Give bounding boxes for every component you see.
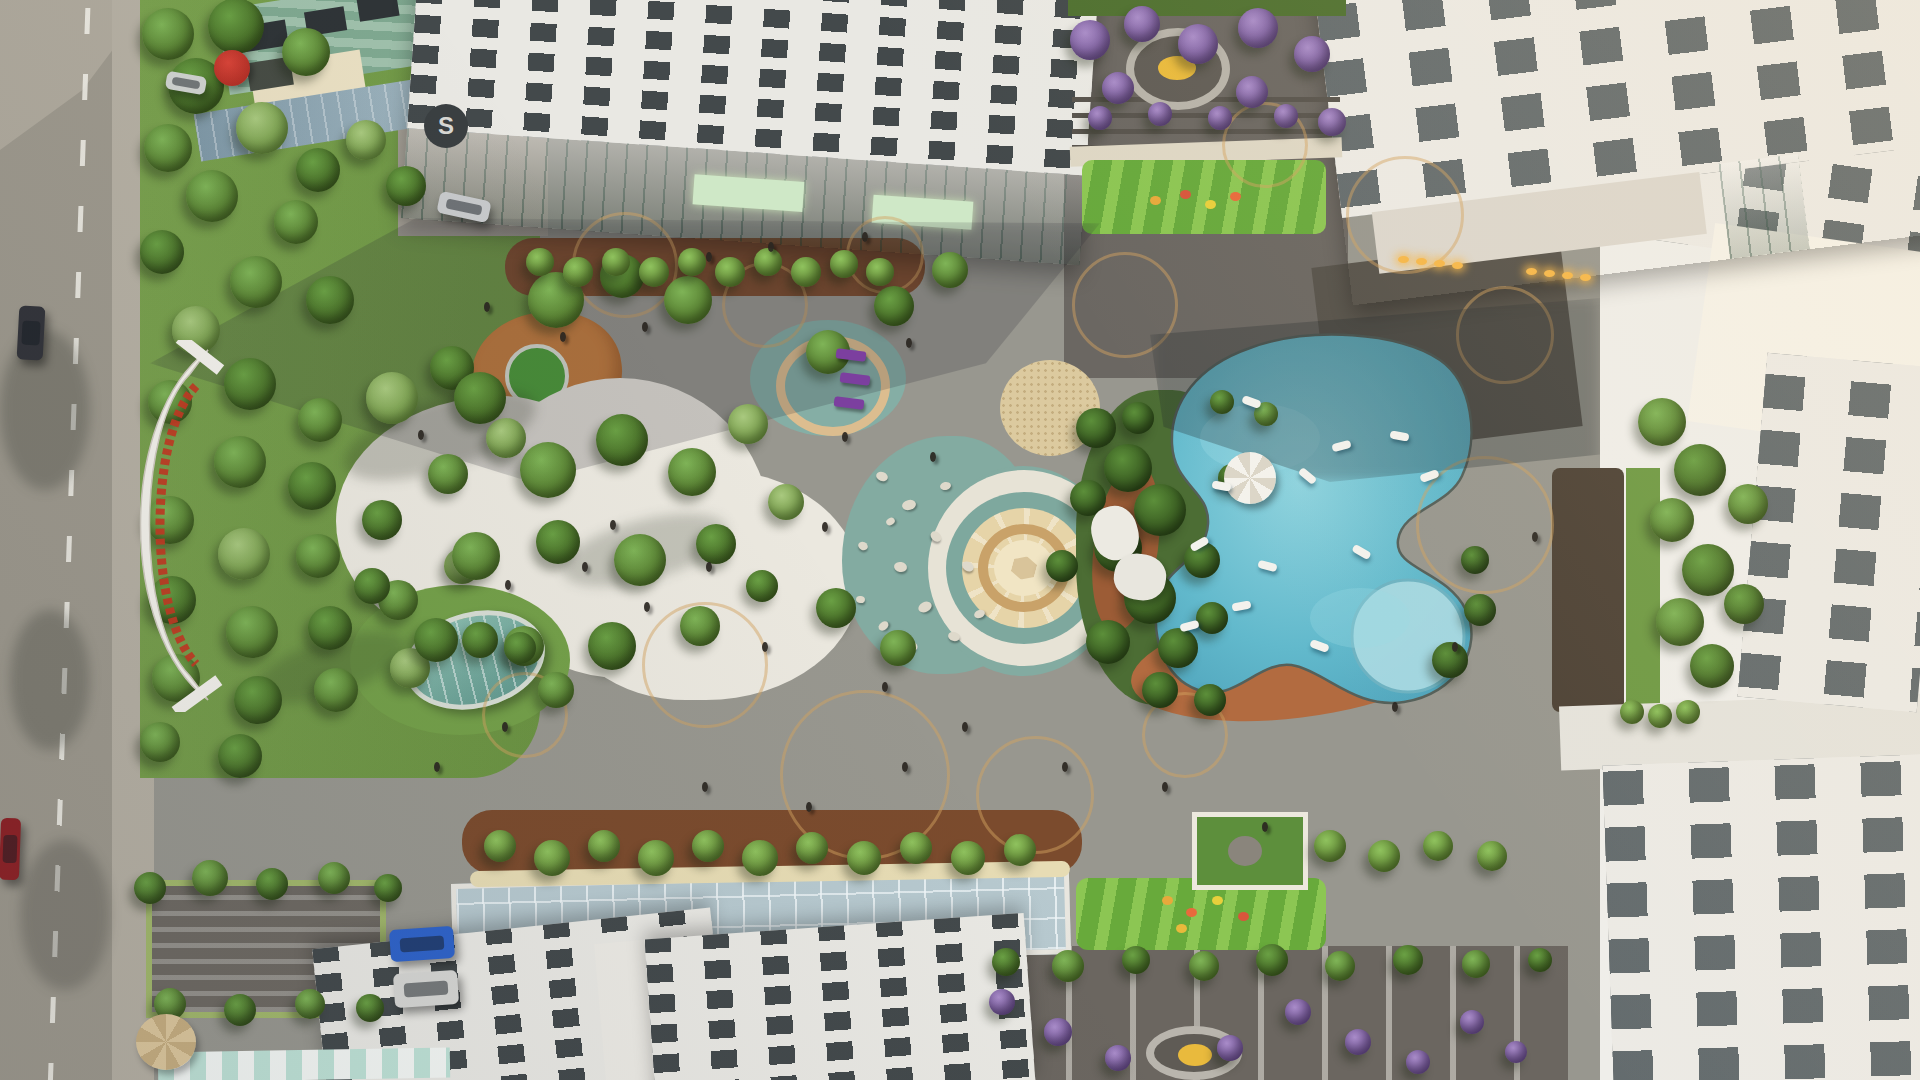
tree bbox=[1088, 106, 1112, 130]
tree bbox=[989, 989, 1015, 1015]
red-cafe-umbrella bbox=[214, 50, 250, 86]
tree bbox=[298, 398, 342, 442]
tree bbox=[1423, 831, 1453, 861]
pond-pebble bbox=[857, 540, 869, 551]
flower-dot bbox=[1176, 924, 1187, 933]
tower-bottom-right bbox=[1602, 755, 1920, 1080]
person bbox=[768, 242, 774, 252]
person bbox=[1162, 782, 1168, 792]
tree bbox=[639, 257, 669, 287]
entrance-downlight bbox=[1562, 272, 1573, 279]
tree bbox=[1046, 550, 1078, 582]
tree bbox=[715, 257, 745, 287]
car-windshield bbox=[403, 980, 449, 998]
tree bbox=[1505, 1041, 1527, 1063]
tree bbox=[847, 841, 881, 875]
right-glass-band bbox=[1737, 353, 1920, 712]
purple-lounger bbox=[840, 372, 871, 386]
tree bbox=[1345, 1029, 1371, 1055]
pond-pebble bbox=[917, 600, 934, 615]
tree bbox=[1142, 672, 1178, 708]
tree bbox=[1122, 946, 1150, 974]
tree bbox=[1460, 1010, 1484, 1034]
flower-dot bbox=[1230, 192, 1241, 201]
tree bbox=[1368, 840, 1400, 872]
tree bbox=[680, 606, 720, 646]
flower-dot bbox=[1212, 896, 1223, 905]
person bbox=[906, 338, 912, 348]
tree bbox=[1208, 106, 1232, 130]
planter-sculpture bbox=[1228, 836, 1262, 866]
entrance-downlight bbox=[1452, 262, 1463, 269]
person bbox=[842, 432, 848, 442]
flower-dot bbox=[1205, 200, 1216, 209]
tree bbox=[374, 874, 402, 902]
tree bbox=[1256, 944, 1288, 976]
person bbox=[610, 520, 616, 530]
entrance-canopy bbox=[78, 340, 238, 712]
person bbox=[484, 302, 490, 312]
tree bbox=[1676, 700, 1700, 724]
tree bbox=[526, 248, 554, 276]
tree bbox=[538, 672, 574, 708]
yellow-flower-bed bbox=[1178, 1044, 1212, 1066]
paving-circle-ring bbox=[1456, 286, 1554, 384]
tree bbox=[728, 404, 768, 444]
tree bbox=[678, 248, 706, 276]
person bbox=[1392, 702, 1398, 712]
canopy-end-wall bbox=[172, 675, 223, 712]
pond-pebble bbox=[855, 595, 865, 603]
pond-pebble bbox=[973, 608, 986, 619]
tree bbox=[1236, 76, 1268, 108]
tree bbox=[282, 28, 330, 76]
tree bbox=[1285, 999, 1311, 1025]
tree bbox=[1148, 102, 1172, 126]
dark-water-feature bbox=[1552, 468, 1624, 712]
tree bbox=[1004, 834, 1036, 866]
tree bbox=[1393, 945, 1423, 975]
car-windshield bbox=[399, 935, 445, 952]
tree bbox=[1682, 544, 1734, 596]
person bbox=[706, 252, 712, 262]
tree bbox=[1217, 1035, 1243, 1061]
tree bbox=[386, 166, 426, 206]
tree bbox=[588, 622, 636, 670]
tree bbox=[1104, 444, 1152, 492]
tree bbox=[874, 286, 914, 326]
tree bbox=[486, 418, 526, 458]
person bbox=[582, 562, 588, 572]
entrance-downlight bbox=[1526, 268, 1537, 275]
entrance-sign-lettering bbox=[160, 386, 196, 664]
tree bbox=[1274, 104, 1298, 128]
canopy-roof bbox=[141, 350, 209, 700]
tree bbox=[768, 484, 804, 520]
tree bbox=[816, 588, 856, 628]
pond-pebble bbox=[885, 516, 896, 527]
tree bbox=[900, 832, 932, 864]
entrance-downlight bbox=[1416, 258, 1427, 265]
tree bbox=[1189, 951, 1219, 981]
s-logo-mark: S bbox=[424, 104, 468, 148]
car-windshield bbox=[3, 835, 18, 863]
tower-bottom-center bbox=[645, 913, 1036, 1080]
tree bbox=[1477, 841, 1507, 871]
tree bbox=[1044, 1018, 1072, 1046]
tree bbox=[186, 170, 238, 222]
tree bbox=[308, 606, 352, 650]
car-white-parked bbox=[393, 970, 459, 1008]
terrace-hedge-edge bbox=[1068, 0, 1346, 16]
tree bbox=[951, 841, 985, 875]
tree bbox=[880, 630, 916, 666]
tree bbox=[1076, 408, 1116, 448]
person bbox=[706, 562, 712, 572]
tree bbox=[296, 148, 340, 192]
tree bbox=[142, 8, 194, 60]
tree bbox=[1528, 948, 1552, 972]
tree bbox=[356, 994, 384, 1022]
person bbox=[862, 232, 868, 242]
tree bbox=[791, 257, 821, 287]
tree bbox=[306, 276, 354, 324]
entrance-downlight bbox=[1434, 260, 1445, 267]
tree bbox=[1728, 484, 1768, 524]
tree bbox=[1102, 72, 1134, 104]
car-windshield bbox=[445, 198, 483, 215]
person bbox=[1452, 642, 1458, 652]
tree bbox=[1196, 602, 1228, 634]
tree bbox=[192, 860, 228, 896]
tree bbox=[256, 868, 288, 900]
person bbox=[502, 722, 508, 732]
tree bbox=[1461, 546, 1489, 574]
tree bbox=[274, 200, 318, 244]
pond-pebble bbox=[893, 561, 908, 573]
tree bbox=[668, 448, 716, 496]
tree bbox=[362, 500, 402, 540]
car-windshield bbox=[172, 77, 201, 90]
tree bbox=[1158, 628, 1198, 668]
entrance-downlight bbox=[1398, 256, 1409, 263]
tree bbox=[520, 442, 576, 498]
tree bbox=[614, 534, 666, 586]
car-blue-parked bbox=[389, 926, 455, 962]
tree bbox=[932, 252, 968, 288]
tree bbox=[208, 0, 264, 54]
tree bbox=[563, 257, 593, 287]
tree bbox=[295, 989, 325, 1019]
pond-pebble bbox=[901, 498, 917, 511]
tree bbox=[1432, 642, 1468, 678]
tree bbox=[288, 462, 336, 510]
tree bbox=[992, 948, 1020, 976]
tree bbox=[1210, 390, 1234, 414]
person bbox=[642, 322, 648, 332]
person bbox=[902, 762, 908, 772]
tree bbox=[1674, 444, 1726, 496]
tree bbox=[1325, 951, 1355, 981]
person bbox=[1262, 822, 1268, 832]
person bbox=[806, 802, 812, 812]
tree bbox=[1724, 584, 1764, 624]
tree bbox=[1134, 484, 1186, 536]
tree bbox=[1656, 598, 1704, 646]
flower-dot bbox=[1186, 908, 1197, 917]
car-windshield bbox=[21, 321, 40, 346]
aerial-render-scene: S bbox=[0, 0, 1920, 1080]
tree bbox=[1690, 644, 1734, 688]
pool-umbrella bbox=[1224, 452, 1276, 504]
entrance-downlight bbox=[1580, 274, 1591, 281]
tree bbox=[1238, 8, 1278, 48]
tree bbox=[742, 840, 778, 876]
entrance-downlight bbox=[1544, 270, 1555, 277]
tree bbox=[236, 102, 288, 154]
lit-lobby-window bbox=[693, 174, 805, 212]
person bbox=[1532, 532, 1538, 542]
tree bbox=[1086, 620, 1130, 664]
person bbox=[1062, 762, 1068, 772]
tree bbox=[134, 872, 166, 904]
tree bbox=[1314, 830, 1346, 862]
paving-circle-ring bbox=[1072, 252, 1178, 358]
person bbox=[882, 682, 888, 692]
tree bbox=[484, 830, 516, 862]
tree bbox=[1294, 36, 1330, 72]
suv-dark-road bbox=[17, 305, 46, 360]
tree bbox=[414, 618, 458, 662]
tree bbox=[692, 830, 724, 862]
tree bbox=[754, 248, 782, 276]
pond-pebble bbox=[929, 529, 944, 544]
tree bbox=[224, 994, 256, 1026]
tree bbox=[140, 230, 184, 274]
tree bbox=[796, 832, 828, 864]
person bbox=[930, 452, 936, 462]
tree bbox=[454, 372, 506, 424]
flower-dot bbox=[1162, 896, 1173, 905]
purple-lounger bbox=[834, 396, 865, 410]
tree bbox=[1464, 594, 1496, 626]
tree bbox=[366, 372, 418, 424]
person bbox=[822, 522, 828, 532]
car-red-road bbox=[0, 818, 21, 881]
tree bbox=[140, 722, 180, 762]
person bbox=[434, 762, 440, 772]
tree bbox=[1122, 402, 1154, 434]
tree bbox=[1620, 700, 1644, 724]
tree bbox=[830, 250, 858, 278]
tree bbox=[218, 734, 262, 778]
tree bbox=[354, 568, 390, 604]
person bbox=[418, 430, 424, 440]
tree bbox=[588, 830, 620, 862]
tree bbox=[1462, 950, 1490, 978]
tree bbox=[452, 532, 500, 580]
tree bbox=[1638, 398, 1686, 446]
tree bbox=[230, 256, 282, 308]
roof-skylight bbox=[357, 0, 400, 22]
tree bbox=[428, 454, 468, 494]
flower-dot bbox=[1180, 190, 1191, 199]
person bbox=[702, 782, 708, 792]
tree bbox=[1052, 950, 1084, 982]
flower-dot bbox=[1238, 912, 1249, 921]
tree bbox=[1105, 1045, 1131, 1071]
person bbox=[962, 722, 968, 732]
striped-awning bbox=[158, 1047, 450, 1080]
tree bbox=[1406, 1050, 1430, 1074]
tree bbox=[314, 668, 358, 712]
tree bbox=[746, 570, 778, 602]
tree bbox=[462, 622, 498, 658]
tree bbox=[534, 840, 570, 876]
tree bbox=[1648, 704, 1672, 728]
pond-pebble bbox=[875, 470, 889, 483]
tree bbox=[1178, 24, 1218, 64]
flower-dot bbox=[1150, 196, 1161, 205]
tree bbox=[296, 534, 340, 578]
tree bbox=[602, 248, 630, 276]
tree bbox=[1124, 6, 1160, 42]
tree bbox=[1650, 498, 1694, 542]
pond-pebble bbox=[939, 481, 951, 491]
tree bbox=[664, 276, 712, 324]
tree bbox=[318, 862, 350, 894]
tree bbox=[346, 120, 386, 160]
tree bbox=[536, 520, 580, 564]
tree bbox=[596, 414, 648, 466]
cafe-umbrella-tan bbox=[136, 1014, 196, 1070]
tree bbox=[1184, 542, 1220, 578]
glass-column-band bbox=[1718, 154, 1809, 259]
person bbox=[505, 580, 511, 590]
person bbox=[644, 602, 650, 612]
canopy-end-wall bbox=[176, 340, 224, 375]
tree bbox=[1318, 108, 1346, 136]
person bbox=[762, 642, 768, 652]
pond-pebble bbox=[947, 631, 961, 643]
tree bbox=[234, 676, 282, 724]
person bbox=[560, 332, 566, 342]
pond-pebble bbox=[961, 560, 976, 574]
tree bbox=[866, 258, 894, 286]
tree bbox=[696, 524, 736, 564]
s-logo-letter: S bbox=[438, 112, 454, 140]
tree bbox=[144, 124, 192, 172]
tree bbox=[1194, 684, 1226, 716]
tree bbox=[638, 840, 674, 876]
paving-circle-ring bbox=[976, 736, 1094, 854]
tree bbox=[1070, 20, 1110, 60]
tree bbox=[504, 632, 536, 664]
pond-pebble bbox=[877, 619, 891, 632]
